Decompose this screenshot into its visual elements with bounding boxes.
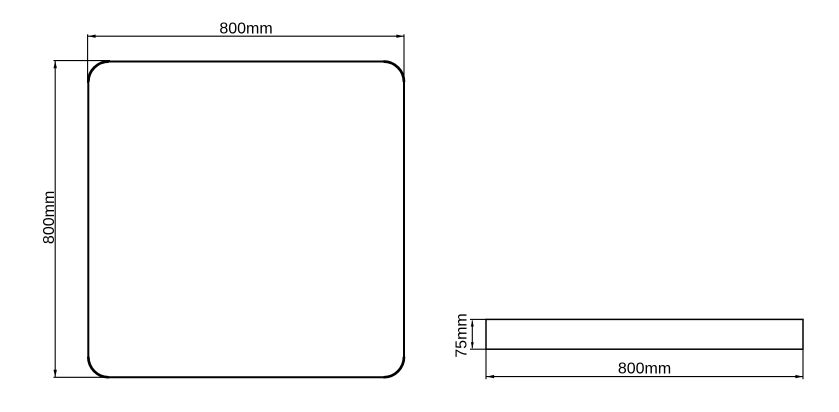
svg-text:800mm: 800mm [219,20,272,37]
svg-text:75mm: 75mm [454,313,471,357]
svg-text:800mm: 800mm [41,191,58,244]
svg-text:800mm: 800mm [618,360,671,377]
